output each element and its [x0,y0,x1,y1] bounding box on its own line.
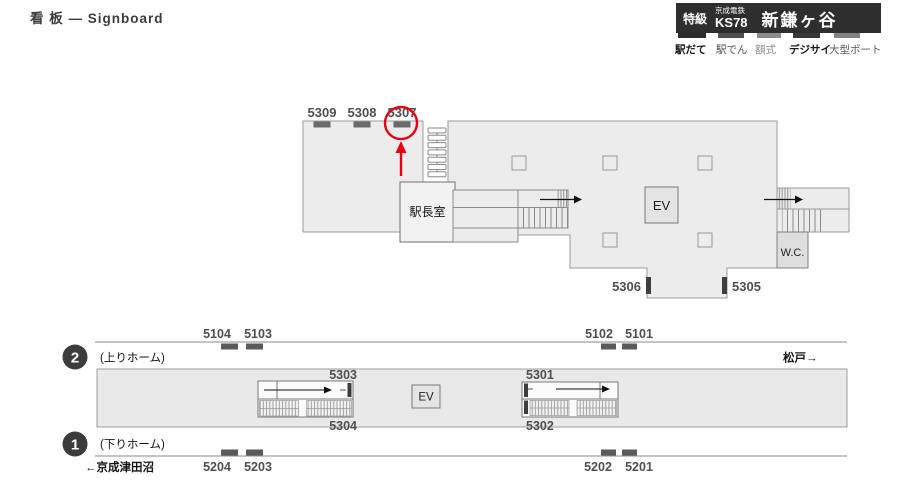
sign-label-5102: 5102 [585,327,613,341]
sign-label-5308: 5308 [348,105,377,120]
platform-elevator-label: EV [418,392,434,404]
east-stairs-icon [782,210,822,232]
sign-marker-5307 [394,122,411,128]
sign-label-5101: 5101 [625,327,653,341]
pillar [603,233,617,247]
sign-label-5201: 5201 [625,460,653,474]
sign-marker-5309 [314,122,331,128]
platform-2-number: 2 [71,350,79,367]
sign-marker-5201 [622,450,637,456]
sign-label-5103: 5103 [244,327,272,341]
sign-label-5309: 5309 [308,105,337,120]
island-platform [97,369,847,427]
sign-label-5104: 5104 [203,327,231,341]
sign-label-5302: 5302 [526,419,554,433]
sign-marker-5101 [622,344,637,350]
direction-matsudo: 松戸→ [783,351,818,365]
sign-label-5305: 5305 [732,279,761,294]
sign-label-5306: 5306 [612,279,641,294]
pillar [603,156,617,170]
sign-marker-5202 [601,450,616,456]
sign-marker-5306 [646,277,651,294]
platform-stairs-a [258,381,353,417]
station-master-office-label: 駅長室 [409,204,445,219]
sign-marker-5104 [221,344,238,350]
ticket-gates-icon [428,128,446,177]
platform-stairs-b [522,382,618,417]
sign-label-5301: 5301 [526,368,554,382]
sign-marker-5103 [246,344,263,350]
upper-platform-label: (上りホーム) [100,352,165,365]
sign-marker-5301 [524,384,528,398]
direction-keisei-tsudanuma: ←京成津田沼 [85,460,154,474]
sign-marker-5204 [221,450,238,456]
wc-label: W.C. [781,247,805,259]
sign-marker-5305 [722,277,727,294]
sign-label-5202: 5202 [584,460,612,474]
sign-label-5304: 5304 [329,419,357,433]
sign-marker-5203 [246,450,263,456]
sign-marker-5302 [524,401,528,415]
sign-label-5203: 5203 [244,460,272,474]
sign-label-5204: 5204 [203,460,231,474]
sign-marker-5303 [348,383,352,397]
sign-marker-5102 [601,344,616,350]
pillar [698,233,712,247]
pillar [698,156,712,170]
east-escalator-hatch [779,189,791,209]
platform-1-number: 1 [71,437,79,454]
sign-label-5303: 5303 [329,368,357,382]
station-map: W.C. 駅長室 EV 5309 5308 5307 [0,0,919,491]
concourse-elevator-label: EV [653,198,671,213]
lower-platform-label: (下りホーム) [100,438,165,451]
sign-marker-5308 [354,122,371,128]
pillar [512,156,526,170]
